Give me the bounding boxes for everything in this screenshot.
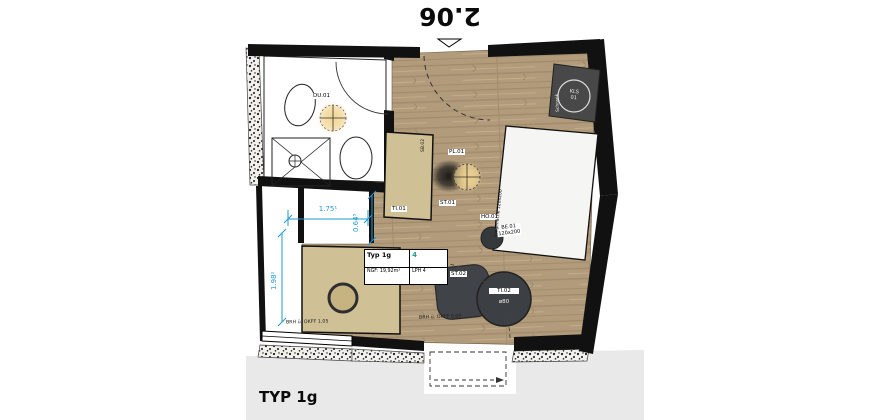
info-type: Typ 1g: [365, 250, 410, 267]
wall-top-left: [248, 44, 420, 58]
wall-niche-west: [298, 187, 304, 243]
dimension-top-text: 2.06: [405, 2, 495, 31]
wall-hatch-left: [246, 48, 264, 185]
label-round-table: TI.02: [489, 288, 519, 294]
info-phase: LPH 4: [410, 267, 447, 284]
label-desk-chair: ST.01: [439, 200, 456, 206]
label-desk: TI.01: [391, 206, 407, 212]
counter-ring: [329, 284, 357, 312]
info-area: NGF: 19,92m²: [365, 267, 410, 284]
info-count: 4: [410, 250, 447, 267]
wall-bathroom-east-stub: [384, 49, 394, 61]
wall-hatch-bottom-mid: [352, 349, 424, 363]
floor-plan-drawing: [0, 0, 870, 420]
label-round-table-dia: ø80: [489, 299, 519, 305]
dim-niche-width: 1.75¹: [300, 205, 356, 213]
dim-niche-depth: 0.64⁵: [352, 214, 360, 232]
entry-threshold: [424, 348, 516, 394]
label-bath-light: DU.01: [312, 93, 331, 99]
toilet: [340, 137, 372, 179]
label-armchair: ST.02: [450, 271, 467, 277]
label-pendant-light: PL.01: [448, 149, 465, 155]
dimension-marker-top: [438, 39, 461, 47]
plan-title: TYP 1g: [259, 388, 317, 406]
bed: [493, 126, 598, 260]
dim-corridor: 1.98¹: [270, 272, 278, 290]
info-box: Typ 1g 4 NGF: 19,92m² LPH 4: [364, 249, 448, 285]
wall-left-lower: [256, 186, 266, 341]
wall-hatch-bottom-right: [512, 349, 589, 362]
floor-plan: 2.06 1.75¹ 0.64⁵ 1.98¹ BRH ü. OKFF 1.05 …: [0, 0, 870, 420]
label-wardrobe-line2: 01: [570, 95, 577, 102]
label-desk-side: SB.02: [421, 139, 426, 152]
